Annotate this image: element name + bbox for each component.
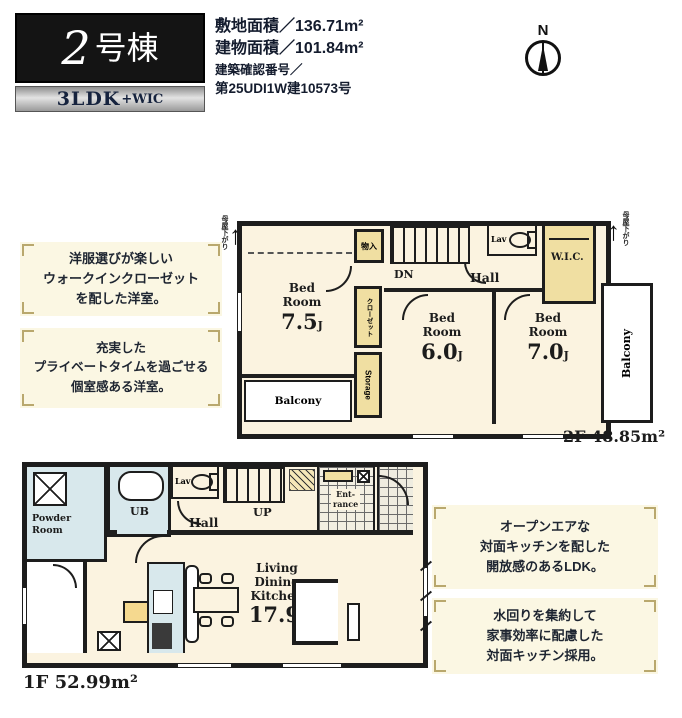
powder-room-label: Powder Room [32, 513, 71, 537]
dining-chair [221, 616, 234, 627]
annotation-line: 水回りを集約して [493, 606, 597, 626]
door-arc [53, 564, 77, 588]
balcony-2f-right: Balcony [601, 283, 653, 423]
door-arc [135, 535, 163, 563]
walk-in-closet: W.I.C. [542, 226, 596, 304]
compass: N [521, 22, 565, 76]
corner-bracket [644, 600, 656, 612]
bathtub-icon [118, 471, 164, 501]
floor-2f-outline: Bed Room 7.5J 物入 クローゼット Storage DN Hall … [237, 221, 611, 439]
entrance-label: Ent- rance [331, 489, 360, 510]
storage-small: 物入 [354, 229, 384, 263]
room-name: Bed Room [279, 282, 325, 310]
wall [167, 530, 413, 535]
building-suffix: 号棟 [95, 32, 159, 64]
entrance-storage-icon [357, 470, 370, 483]
closet-bedroom2: クローゼット [354, 286, 382, 348]
window [522, 434, 564, 439]
annotation-line: 開放感のあるLDK。 [486, 557, 604, 577]
dining-chair [199, 573, 212, 584]
corner-bracket [434, 575, 446, 587]
door-arc [326, 266, 352, 292]
corner-bracket [434, 600, 446, 612]
window [237, 292, 242, 332]
annotation-line: 家事効率に配慮した [486, 626, 603, 646]
compass-needle [538, 45, 548, 71]
annotation-line: 洋服選びが楽しい [69, 249, 173, 269]
floor-2f-area-label: 2F 48.85m² [563, 427, 665, 446]
confirmation-number-value: 第25UDI1W建10573号 [215, 80, 425, 98]
floor-plan-1f: Powder Room UB Lav UP Hall [15, 450, 435, 712]
corner-bracket [434, 660, 446, 672]
annotation-line: ウォークインクローゼット [43, 269, 199, 289]
sink-icon [152, 623, 172, 649]
flyer-page: 2 号棟 3LDK +WIC 敷地面積／136.71m² 建物面積／101.84… [0, 0, 682, 718]
kitchen-counter [147, 562, 185, 653]
wall [107, 530, 117, 535]
compass-n-label: N [521, 22, 565, 39]
annotation-2f-private: 充実した プライベートタイムを過ごせる 個室感ある洋室。 [20, 328, 222, 408]
room-name: Bed Room [419, 312, 465, 340]
roof-slope-label: 母屋下がり [219, 215, 229, 255]
stairs-up [223, 467, 285, 503]
unit-bath: UB [107, 467, 171, 537]
corner-bracket [644, 507, 656, 519]
room-bedroom-7-0: Bed Room 7.0J [504, 312, 592, 363]
layout-banner: 3LDK +WIC [15, 86, 205, 112]
room-size: 6.0 [421, 339, 458, 364]
window [177, 663, 232, 668]
tv-board [347, 603, 360, 641]
annotation-line: 充実した [96, 339, 146, 358]
lavatory-1f: Lav [171, 467, 219, 499]
balcony-label: Balcony [275, 395, 322, 407]
room-size-unit: J [564, 349, 569, 362]
room-size-unit: J [318, 319, 323, 332]
annotation-line: プライベートタイムを過ごせる [34, 358, 209, 377]
wall [242, 374, 354, 378]
stairs-down [390, 226, 470, 264]
hanger-pipe-icon [549, 238, 589, 240]
corner-bracket [644, 575, 656, 587]
annotation-line: 個室感ある洋室。 [71, 378, 171, 397]
building-title-banner: 2 号棟 [15, 13, 205, 83]
entrance-shelf [323, 470, 353, 482]
dining-table [193, 587, 239, 613]
annotation-1f-kitchen: 水回りを集約して 家事効率に配慮した 対面キッチン採用。 [432, 598, 658, 674]
window [282, 663, 342, 668]
lav-label: Lav [491, 234, 506, 244]
stairs-up-label: UP [253, 505, 272, 519]
site-area: 敷地面積／136.71m² [215, 16, 425, 38]
lavatory-2f: Lav [487, 226, 537, 256]
window [22, 587, 27, 625]
building-number: 2 [61, 25, 90, 71]
window [412, 434, 454, 439]
storage-small-label: 物入 [361, 241, 377, 252]
toilet-tank-icon [209, 473, 219, 491]
floor-plan-2f: 母屋下がり ↑ ↑ 母屋下がり Bed Room 7.5J 物入 クローゼット [215, 205, 675, 455]
corner-bracket [22, 302, 34, 314]
annotation-line: を配した洋室。 [75, 289, 166, 309]
powder-line2: Room [32, 525, 71, 537]
annotation-1f-ldk: オープンエアな 対面キッチンを配した 開放感のあるLDK。 [432, 505, 658, 589]
dining-chair [221, 573, 234, 584]
stove-icon [153, 590, 173, 614]
sofa [292, 579, 338, 645]
ldk-line1: Living [222, 562, 332, 576]
dining-chair [199, 616, 212, 627]
corner-bracket [22, 330, 34, 342]
wall [492, 288, 496, 424]
corner-bracket [644, 660, 656, 672]
hall-1f-label: Hall [189, 515, 218, 530]
room-name: Bed Room [525, 312, 571, 340]
kitchen-cabinet [123, 601, 149, 623]
side-room [27, 562, 87, 653]
annotation-line: 対面キッチン採用。 [486, 646, 603, 666]
room-bedroom-6-0: Bed Room 6.0J [400, 312, 484, 363]
storage-label: Storage [364, 370, 373, 400]
annotation-line: オープンエアな [500, 517, 590, 537]
annotation-line: 対面キッチンを配した [480, 537, 610, 557]
door-arc [464, 262, 486, 284]
powder-line1: Powder [32, 513, 71, 525]
room-size: 7.0 [527, 339, 564, 364]
refrigerator-icon [97, 631, 121, 651]
storage-bedroom1: Storage [354, 352, 382, 418]
wic-label: W.I.C. [551, 252, 584, 263]
entrance-line1: Ent- [333, 489, 358, 499]
room-size-unit: J [458, 349, 463, 362]
balcony-2f-bottom: Balcony [244, 380, 352, 422]
dashed-ceiling-line [248, 252, 352, 254]
washing-machine-icon [33, 472, 67, 506]
entrance-line2: rance [333, 499, 358, 509]
corner-bracket [22, 394, 34, 406]
room-size: 7.5 [281, 309, 318, 334]
toilet-tank-icon [527, 231, 537, 249]
corner-bracket [22, 244, 34, 256]
lav-label: Lav [175, 476, 190, 486]
confirmation-number-label: 建築確認番号／ [215, 62, 425, 80]
layout-main: 3LDK [57, 88, 121, 110]
roof-slope-label: 母屋下がり [620, 211, 630, 251]
annotation-2f-wic: 洋服選びが楽しい ウォークインクローゼット を配した洋室。 [20, 242, 222, 316]
ub-label: UB [130, 505, 149, 518]
wall-niche-hatch [289, 469, 315, 491]
powder-room: Powder Room [27, 467, 107, 562]
closet-label: クローゼット [363, 298, 373, 337]
balcony-label: Balcony [621, 328, 634, 377]
floor-1f-outline: Powder Room UB Lav UP Hall [22, 462, 428, 668]
compass-circle [525, 40, 561, 76]
stairs-dn-label: DN [394, 268, 414, 281]
building-area: 建物面積／101.84m² [215, 38, 425, 60]
layout-wic: +WIC [121, 92, 163, 107]
wall [384, 288, 544, 292]
corner-bracket [434, 507, 446, 519]
floor-1f-area-label: 1F 52.99m² [23, 672, 138, 693]
property-info: 敷地面積／136.71m² 建物面積／101.84m² 建築確認番号／ 第25U… [215, 16, 425, 98]
